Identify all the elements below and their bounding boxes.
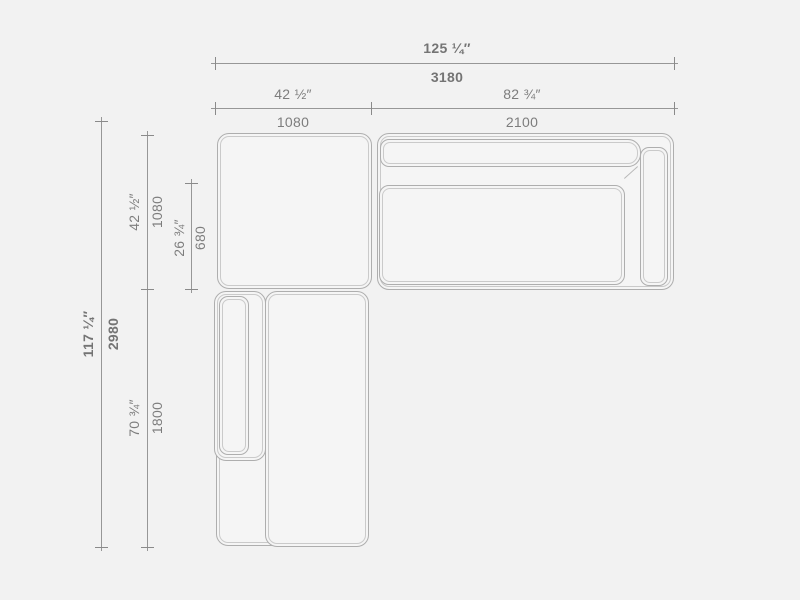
sofa-seat-seam (382, 188, 622, 282)
dim-tick (95, 547, 108, 548)
dim-tick (674, 57, 675, 70)
sofa-backrest-outline (380, 139, 641, 167)
dim-tick (371, 102, 372, 115)
corner-module-seam (220, 136, 369, 286)
dim-tick (95, 121, 108, 122)
dim-tick (185, 289, 198, 290)
sofa-armrest-seam (643, 150, 665, 283)
chaise-seat-outline (265, 291, 369, 547)
label-right-section-width-inches: 82 ¾″ (503, 87, 541, 101)
dim-tick (141, 547, 154, 548)
dim-tick (141, 135, 154, 136)
label-seat-depth-mm: 680 (193, 226, 207, 250)
label-total-width-mm: 3180 (431, 70, 463, 84)
label-left-section-depth-inches: 42 ½″ (127, 193, 141, 231)
label-total-depth-inches: 117 ¼″ (81, 311, 95, 358)
dim-tick (674, 102, 675, 115)
dim-total-depth-line (101, 117, 102, 551)
dim-tick (215, 57, 216, 70)
dim-left-sections-line (147, 131, 148, 551)
sofa-seat-outline (379, 185, 625, 285)
label-seat-depth-inches: 26 ¾″ (172, 219, 186, 257)
dim-total-width-line (211, 63, 678, 64)
dim-tick (215, 102, 216, 115)
label-total-width-inches: 125 ¼″ (423, 41, 470, 55)
chaise-seat-seam (268, 294, 366, 544)
dim-tick (141, 289, 154, 290)
chaise-armrest-cushion-seam (222, 299, 246, 452)
label-chaise-length-inches: 70 ¾″ (127, 399, 141, 437)
label-chaise-length-mm: 1800 (150, 402, 164, 434)
label-left-section-depth-mm: 1080 (150, 196, 164, 228)
label-total-depth-mm: 2980 (106, 318, 120, 350)
chaise-armrest-cushion-outline (219, 296, 249, 455)
dim-top-sections-line (211, 108, 678, 109)
drawing-canvas: 125 ¼″ 3180 42 ½″ 1080 82 ¾″ 2100 117 ¼″… (0, 0, 800, 600)
label-right-section-width-mm: 2100 (506, 115, 538, 129)
sofa-armrest-outline (640, 147, 668, 286)
corner-module-outline (217, 133, 372, 289)
dim-tick (185, 183, 198, 184)
sofa-backrest-seam (383, 142, 638, 164)
label-left-section-width-inches: 42 ½″ (274, 87, 312, 101)
label-left-section-width-mm: 1080 (277, 115, 309, 129)
